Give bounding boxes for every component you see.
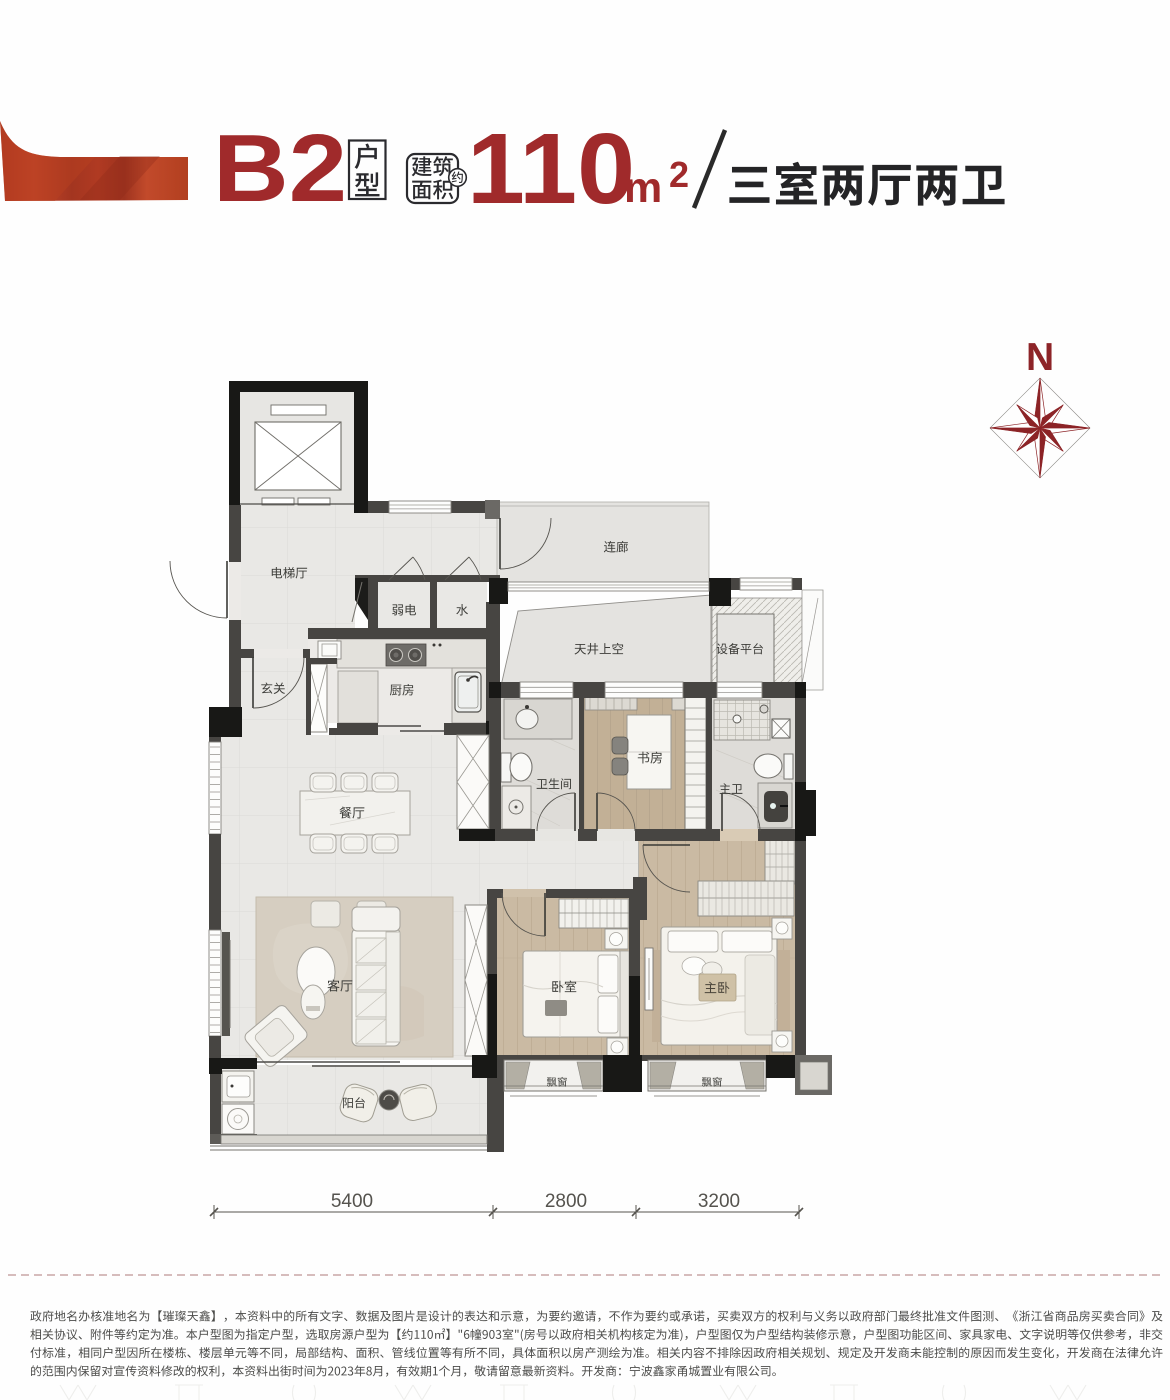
svg-text:110: 110 <box>467 113 635 225</box>
svg-text:2800: 2800 <box>545 1191 587 1212</box>
svg-text:B2: B2 <box>213 115 347 222</box>
svg-text:m: m <box>624 164 662 212</box>
svg-text:N: N <box>1026 336 1054 379</box>
svg-text:2: 2 <box>669 154 689 195</box>
svg-text:5400: 5400 <box>331 1191 373 1212</box>
svg-text:3200: 3200 <box>698 1191 740 1212</box>
